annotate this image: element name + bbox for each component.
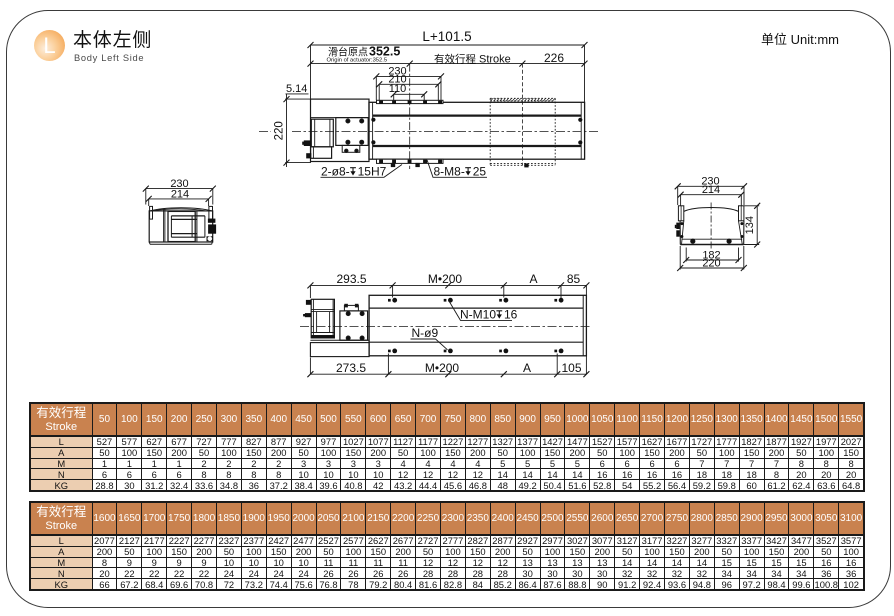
svg-text:有效行程: 有效行程 [434, 52, 476, 65]
svg-text:5.14: 5.14 [286, 83, 307, 95]
svg-text:N-ø9: N-ø9 [412, 326, 439, 340]
svg-text:L+101.5: L+101.5 [422, 29, 471, 44]
svg-text:214: 214 [171, 188, 189, 200]
svg-text:Stroke: Stroke [479, 53, 511, 65]
svg-text:105: 105 [561, 361, 581, 375]
svg-text:Origin of actuator:352.5: Origin of actuator:352.5 [327, 57, 388, 63]
svg-text:M•200: M•200 [425, 361, 460, 375]
svg-text:220: 220 [702, 257, 720, 269]
svg-text:226: 226 [544, 51, 564, 65]
svg-text:110: 110 [389, 83, 407, 95]
svg-text:M•200: M•200 [428, 272, 463, 286]
svg-text:16: 16 [504, 308, 518, 322]
svg-text:15H7: 15H7 [358, 165, 387, 179]
svg-text:85: 85 [567, 272, 581, 286]
svg-text:8-M8-: 8-M8- [434, 165, 465, 179]
svg-text:293.5: 293.5 [336, 272, 366, 286]
svg-text:2-ø8-: 2-ø8- [321, 165, 350, 179]
svg-text:134: 134 [744, 216, 756, 234]
svg-text:A: A [529, 272, 537, 286]
svg-text:273.5: 273.5 [336, 361, 366, 375]
svg-text:214: 214 [702, 184, 720, 196]
svg-text:N-M10: N-M10 [460, 308, 496, 322]
svg-text:220: 220 [273, 121, 285, 140]
svg-text:25: 25 [473, 165, 487, 179]
svg-text:A: A [523, 361, 531, 375]
